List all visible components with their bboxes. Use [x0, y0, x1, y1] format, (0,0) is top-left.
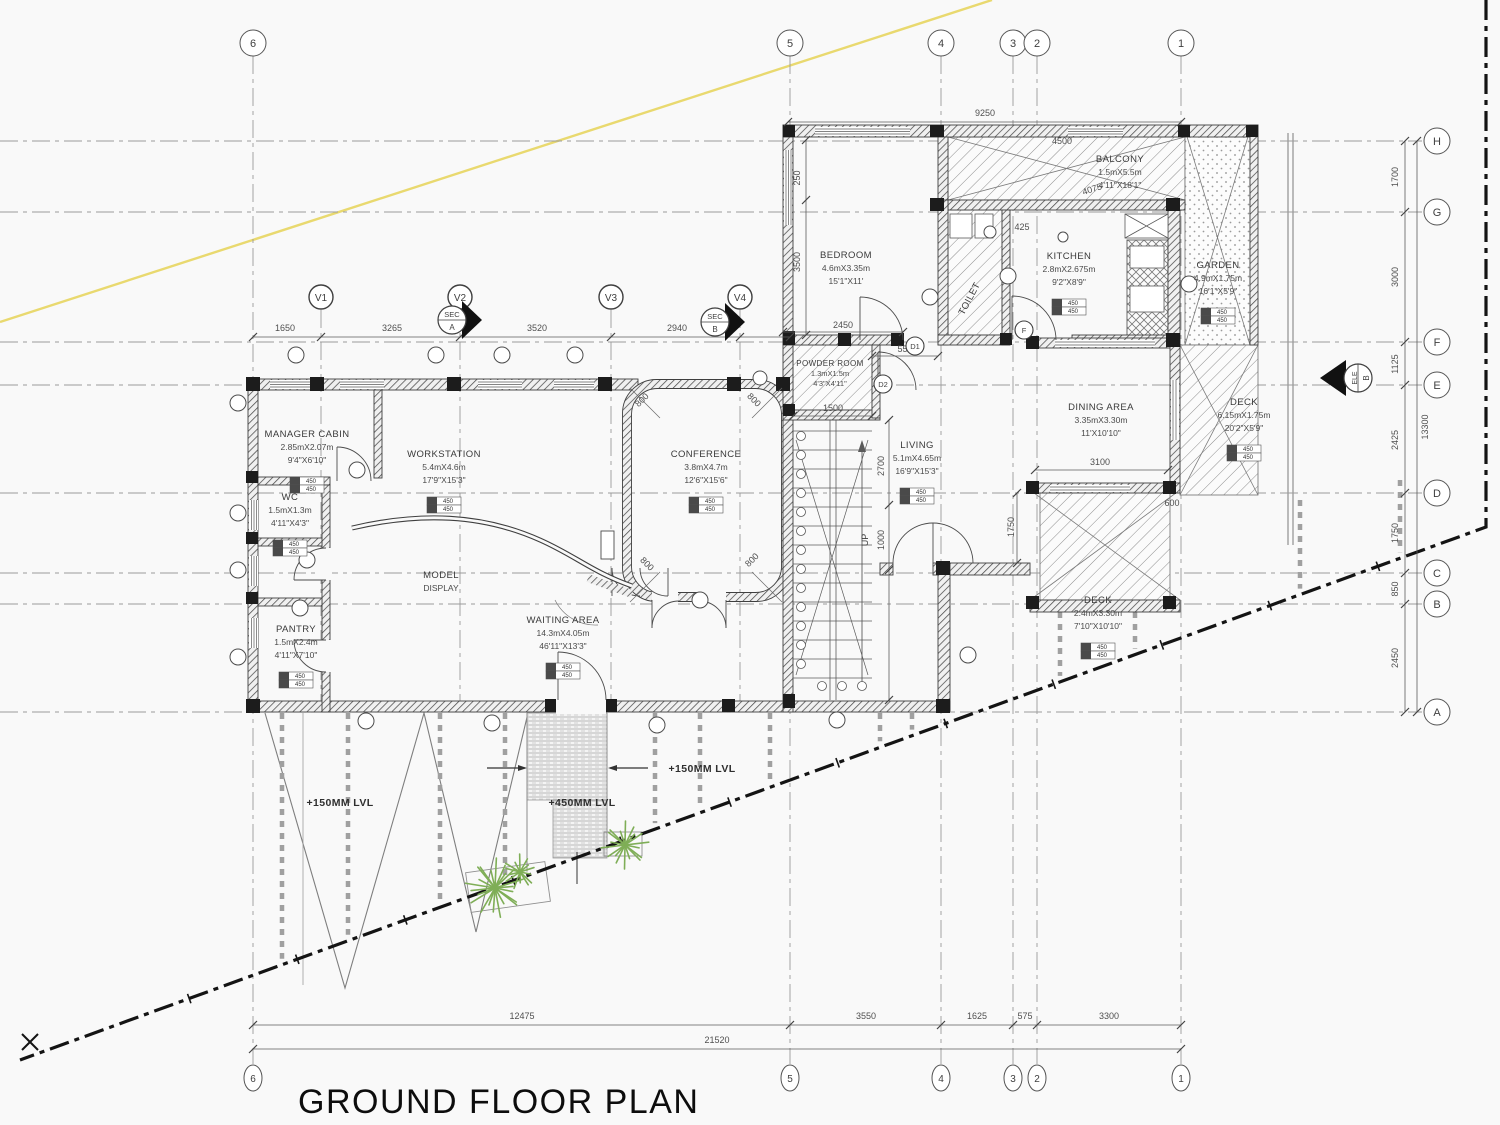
level-tag-value: 450 — [1243, 447, 1254, 453]
room-name: GARDEN — [1196, 260, 1239, 271]
level-tag-key — [900, 496, 910, 504]
room-dimension: 6.15mX1.75m — [1218, 410, 1271, 420]
dimension-text-9250: 9250 — [975, 108, 995, 118]
dimension-text-800: 800 — [638, 555, 656, 573]
room-dimension: 9'2"X8'9" — [1052, 277, 1086, 287]
level-tag-value: 450 — [562, 673, 573, 679]
grid-bubble-bottom-label-1: 1 — [1178, 1074, 1184, 1085]
door-tag-label-F: F — [1022, 326, 1027, 335]
room-name: MANAGER CABIN — [265, 429, 350, 440]
level-tag-value: 450 — [705, 507, 716, 513]
room-label-workstation: WORKSTATION5.4mX4.6m17'9"X15'3" — [407, 449, 481, 485]
room-name: DINING AREA — [1068, 402, 1134, 413]
dimension-text-3500: 3500 — [792, 252, 802, 272]
level-tag: 450450 — [290, 477, 324, 493]
room-dimension: 4'11"X18'1" — [1099, 180, 1142, 190]
dimension-text-13300: 13300 — [1420, 414, 1430, 439]
site-boundary-line — [20, 0, 1486, 1060]
level-tag-value: 450 — [443, 507, 454, 513]
room-name: CONFERENCE — [671, 449, 742, 460]
room-dimension: 2.85mX2.07m — [281, 442, 334, 452]
room-dimension: 4'3"X4'11" — [813, 379, 847, 388]
grid-bubble-right-label-F: F — [1434, 337, 1441, 349]
room-name: KITCHEN — [1047, 251, 1092, 262]
grid-bubble-right-label-C: C — [1433, 568, 1441, 580]
room-name: BALCONY — [1096, 154, 1144, 165]
room-dimension: 46'11"X13'3" — [539, 641, 586, 651]
grid-bubble-right-label-A: A — [1433, 707, 1441, 719]
room-dimension: 3.8mX4.7m — [684, 462, 727, 472]
elevation-arrow-icon — [1320, 360, 1346, 396]
elevation-marker-B: ELEB — [1320, 360, 1372, 396]
level-tag: 450450 — [900, 488, 934, 504]
level-tag-key — [279, 680, 289, 688]
room-label-conference: CONFERENCE3.8mX4.7m12'6"X15'6" — [671, 449, 742, 485]
grid-bubble-bottom-label-3: 3 — [1010, 1074, 1016, 1085]
level-tag-key — [1052, 299, 1062, 307]
dimension-text-425: 425 — [1014, 222, 1029, 232]
dimension-text-2940: 2940 — [667, 323, 687, 333]
room-dimension: 4.6mX3.35m — [822, 263, 870, 273]
level-tag-value: 450 — [295, 682, 306, 688]
room-label-garden: GARDEN4.9mX1.75m16'1"X5'9" — [1194, 260, 1242, 296]
level-tag-key — [290, 477, 300, 485]
dimension-text-2700: 2700 — [876, 456, 886, 476]
parking-zigzag — [265, 713, 528, 988]
elevation-label: ELE — [1352, 371, 1359, 385]
grid-bubble-right-label-H: H — [1433, 136, 1441, 148]
dimension-text-21520: 21520 — [704, 1035, 729, 1045]
level-tag-value: 450 — [1068, 309, 1079, 315]
level-tag: 450450 — [546, 663, 580, 679]
room-dimension: 1.5mX5.5m — [1098, 167, 1141, 177]
level-tag-value: 450 — [916, 498, 927, 504]
level-tag-value: 450 — [306, 487, 317, 493]
level-tag: 450450 — [1081, 643, 1115, 659]
level-tag-key — [1201, 316, 1211, 324]
level-tag-value: 450 — [306, 479, 317, 485]
room-dimension: DISPLAY — [423, 583, 459, 593]
room-dimension: 2.8mX2.675m — [1043, 264, 1096, 274]
level-tag-key — [689, 505, 699, 513]
level-tag-value: 450 — [1068, 301, 1079, 307]
room-dimension: 7'10"X10'10" — [1074, 621, 1122, 631]
room-dimension: 1.5mX1.3m — [268, 505, 311, 515]
room-dimension: 12'6"X15'6" — [684, 475, 727, 485]
level-tag-value: 450 — [1097, 653, 1108, 659]
room-name: DECK — [1084, 595, 1112, 606]
level-tag-key — [1052, 307, 1062, 315]
room-name: WAITING AREA — [526, 615, 599, 626]
dimension-text-2450: 2450 — [833, 320, 853, 330]
grid-bubble-bottom-label-6: 6 — [250, 1074, 256, 1085]
level-tag: 450450 — [1052, 299, 1086, 315]
level-tag-key — [900, 488, 910, 496]
level-tag-value: 450 — [289, 550, 300, 556]
dimension-text-1650: 1650 — [275, 323, 295, 333]
level-tag-value: 450 — [1097, 645, 1108, 651]
drawing-title: GROUND FLOOR PLAN — [298, 1083, 699, 1121]
room-name: BEDROOM — [820, 250, 872, 261]
room-name: WORKSTATION — [407, 449, 481, 460]
grid-bubble-right-label-G: G — [1433, 207, 1442, 219]
grid-bubble-right-label-E: E — [1433, 380, 1440, 392]
room-dimension: 2.4mX3.30m — [1074, 608, 1122, 618]
level-tag-key — [279, 672, 289, 680]
dimension-text-1750: 1750 — [1006, 517, 1016, 537]
level-tag-key — [546, 663, 556, 671]
room-name: LIVING — [900, 440, 934, 451]
room-label-waiting-area: WAITING AREA14.3mX4.05m46'11"X13'3" — [526, 615, 599, 651]
deck-bottom-area — [1040, 493, 1170, 600]
grid-bubble-bottom-label-2: 2 — [1034, 1074, 1040, 1085]
level-tag-value: 450 — [705, 499, 716, 505]
dimension-text-3300: 3300 — [1099, 1011, 1119, 1021]
dimension-text-800: 800 — [743, 551, 761, 569]
grid-bubble-top-label-3: 3 — [1010, 38, 1016, 50]
room-label-bedroom: BEDROOM4.6mX3.35m15'1"X11' — [820, 250, 872, 286]
room-dimension: 16'9"X15'3" — [895, 466, 938, 476]
dimension-text-3100: 3100 — [1090, 457, 1110, 467]
room-label-wc: WC1.5mX1.3m4'11"X4'3" — [268, 492, 311, 528]
level-annotation: +450MM LVL — [548, 797, 615, 809]
dimension-text-1125: 1125 — [1390, 354, 1400, 373]
dimension-text-2450: 2450 — [1390, 648, 1400, 668]
level-tag-value: 450 — [1217, 310, 1228, 316]
section-label-bottom: A — [449, 323, 455, 332]
dimension-text-3000: 3000 — [1390, 267, 1400, 287]
level-tag-key — [689, 497, 699, 505]
level-annotation: +150MM LVL — [306, 797, 373, 809]
room-dimension: 15'1"X11' — [829, 276, 864, 286]
level-tag-value: 450 — [1243, 455, 1254, 461]
elevation-letter: B — [1362, 375, 1371, 380]
grid-bubble-bottom-label-4: 4 — [938, 1074, 944, 1085]
room-dimension: 9'4"X6'10" — [288, 455, 327, 465]
dimension-text-4500: 4500 — [1052, 136, 1072, 146]
dimension-text-1000: 1000 — [876, 530, 886, 550]
v-axis-label-V1: V1 — [315, 293, 328, 304]
room-label-pantry: PANTRY1.5mX2.4m4'11"X7'10" — [274, 624, 317, 660]
dimension-text-1625: 1625 — [967, 1011, 987, 1021]
level-tag-key — [273, 548, 283, 556]
room-label-dining-area: DINING AREA3.35mX3.30m11'X10'10" — [1068, 402, 1134, 438]
floor-plan-drawing: 665544332211HGFEDCBAV1V2V3V4MANAGER CABI… — [0, 0, 1500, 1125]
grid-bubble-top-label-5: 5 — [787, 38, 793, 50]
level-tag-key — [273, 540, 283, 548]
floor-plan-canvas: { "title": "GROUND FLOOR PLAN", "colors"… — [0, 0, 1500, 1125]
level-tag-value: 450 — [1217, 318, 1228, 324]
dimension-text-3520: 3520 — [527, 323, 547, 333]
dimension-text-3550: 3550 — [856, 1011, 876, 1021]
level-tag: 450450 — [1227, 445, 1261, 461]
v-axis-label-V4: V4 — [734, 293, 747, 304]
generated-labels: 665544332211HGFEDCBAV1V2V3V4MANAGER CABI… — [240, 30, 1450, 1091]
room-name: DECK — [1230, 397, 1258, 408]
level-tag-key — [1227, 453, 1237, 461]
room-name: WC — [282, 492, 299, 503]
grid-bubble-top-label-1: 1 — [1178, 38, 1184, 50]
dimension-text-250: 250 — [792, 170, 802, 185]
level-tag: 450450 — [273, 540, 307, 556]
level-tag-key — [1081, 643, 1091, 651]
grid-bubble-top-label-6: 6 — [250, 38, 256, 50]
stairs-up-label: UP — [860, 534, 870, 547]
dimension-text-1750: 1750 — [1390, 523, 1400, 543]
level-tag: 450450 — [689, 497, 723, 513]
room-dimension: 4'11"X7'10" — [275, 650, 318, 660]
level-tag-key — [427, 497, 437, 505]
grid-bubble-top-label-2: 2 — [1034, 38, 1040, 50]
dimension-text-1700: 1700 — [1390, 167, 1400, 187]
room-dimension: 5.4mX4.6m — [422, 462, 465, 472]
level-tag: 450450 — [279, 672, 313, 688]
level-tag-value: 450 — [562, 665, 573, 671]
v-axis-label-V3: V3 — [605, 293, 618, 304]
level-tag-value: 450 — [295, 674, 306, 680]
section-label-top: SEC — [707, 312, 723, 321]
level-tag-value: 450 — [289, 542, 300, 548]
door-tag-label-D1: D1 — [910, 342, 920, 351]
curved-display-wall — [352, 518, 632, 625]
staircase — [793, 420, 872, 700]
room-dimension: 1.5mX2.4m — [274, 637, 317, 647]
grid-bubble-right-label-B: B — [1433, 599, 1440, 611]
level-tag: 450450 — [1201, 308, 1235, 324]
level-tag: 450450 — [427, 497, 461, 513]
dimension-text-2425: 2425 — [1390, 430, 1400, 450]
room-dimension: 16'1"X5'9" — [1199, 286, 1238, 296]
dimension-text-850: 850 — [1390, 581, 1400, 596]
room-name: PANTRY — [276, 624, 316, 635]
room-dimension: 17'9"X15'3" — [422, 475, 465, 485]
level-tag-key — [1081, 651, 1091, 659]
level-annotation: +150MM LVL — [668, 763, 735, 775]
dimension-text-600: 600 — [1164, 498, 1179, 508]
room-dimension: 5.1mX4.65m — [893, 453, 941, 463]
dimension-text-12475: 12475 — [509, 1011, 534, 1021]
yellow-survey-line — [0, 0, 992, 322]
door-tag-label-D2: D2 — [878, 380, 888, 389]
room-dimension: 4'11"X4'3" — [271, 518, 309, 528]
room-label-kitchen: KITCHEN2.8mX2.675m9'2"X8'9" — [1043, 251, 1096, 287]
section-label-bottom: B — [712, 325, 717, 334]
dimension-text-575: 575 — [1017, 1011, 1032, 1021]
dimension-text-3265: 3265 — [382, 323, 402, 333]
room-name: POWDER ROOM — [796, 359, 864, 368]
dimension-text-800: 800 — [745, 391, 763, 409]
room-dimension: 11'X10'10" — [1081, 428, 1121, 438]
room-dimension: 4.9mX1.75m — [1194, 273, 1242, 283]
level-tag-value: 450 — [443, 499, 454, 505]
room-dimension: 3.35mX3.30m — [1075, 415, 1128, 425]
v-axis-label-V2: V2 — [454, 293, 467, 304]
dimension-text-1500: 1500 — [823, 403, 843, 413]
grid-bubble-right-label-D: D — [1433, 488, 1441, 500]
section-label-top: SEC — [444, 310, 460, 319]
room-label-model: MODELDISPLAY — [423, 570, 459, 593]
generated-underlay — [0, 0, 1486, 1064]
room-label-living: LIVING5.1mX4.65m16'9"X15'3" — [893, 440, 941, 476]
level-tag-key — [1227, 445, 1237, 453]
boundary-tick — [836, 758, 839, 767]
grid-bubble-bottom-label-5: 5 — [787, 1074, 793, 1085]
radius-leaders — [630, 388, 782, 602]
room-label-balcony: BALCONY1.5mX5.5m4'11"X18'1" — [1096, 154, 1144, 190]
level-tag-value: 450 — [916, 490, 927, 496]
room-name: MODEL — [423, 570, 459, 581]
level-tag-key — [427, 505, 437, 513]
room-dimension: 20'2"X5'9" — [1225, 423, 1264, 433]
level-tag-key — [1201, 308, 1211, 316]
grid-bubble-top-label-4: 4 — [938, 38, 944, 50]
level-tag-key — [546, 671, 556, 679]
stone-path-upper — [527, 713, 607, 800]
room-dimension: 14.3mX4.05m — [537, 628, 590, 638]
room-dimension: 1.3mX1.5m — [811, 369, 849, 378]
